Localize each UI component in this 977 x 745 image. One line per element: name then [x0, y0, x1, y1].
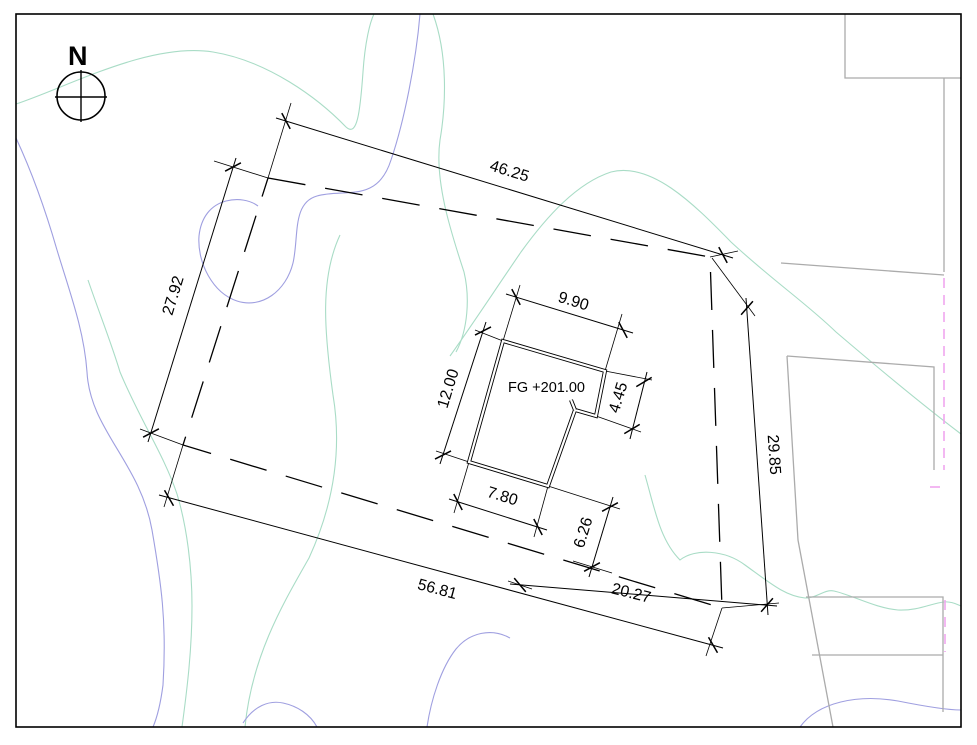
- north-arrow: N: [55, 41, 107, 122]
- extension-line: [548, 486, 620, 509]
- site-plan-canvas: 46.25 27.92 56.81 29.85 9.90 12.00 4.45 …: [0, 0, 977, 745]
- dimension-line-offset-right: [589, 497, 613, 577]
- dimension-text-bldg-bottom: 7.80: [485, 484, 520, 509]
- contour-line: [88, 280, 192, 727]
- extension-line: [706, 608, 722, 656]
- tick-mark: [454, 494, 462, 510]
- tick-mark: [619, 322, 627, 338]
- parcel-outline: [787, 356, 934, 470]
- tick-mark: [225, 163, 241, 171]
- site-plan-drawing: 46.25 27.92 56.81 29.85 9.90 12.00 4.45 …: [0, 0, 977, 745]
- contour-line: [800, 699, 961, 727]
- easement-lines: [930, 278, 947, 652]
- dimension-text-offset-right: 6.26: [571, 515, 596, 550]
- dimension-line-site-top: [276, 118, 733, 258]
- contour-line: [16, 14, 374, 129]
- extension-line: [140, 429, 183, 445]
- tick-mark: [165, 490, 174, 506]
- dimension-text-site-left: 27.92: [160, 274, 188, 317]
- contour-line: [199, 14, 420, 303]
- road-edge: [787, 356, 833, 727]
- tick-mark: [512, 289, 520, 305]
- parcel-outline: [845, 14, 961, 78]
- dimension-text-bldg-right: 4.45: [606, 380, 631, 415]
- dimension-line-site-bottom: [159, 495, 723, 648]
- contour-line: [433, 14, 467, 352]
- extension-line: [164, 445, 183, 507]
- dimension-text-bldg-left: 12.00: [435, 367, 463, 410]
- building-footprint: [469, 341, 605, 486]
- extension-line: [503, 285, 520, 341]
- north-label: N: [68, 41, 88, 71]
- contour-lines-minor: [16, 14, 961, 727]
- contour-line: [16, 138, 164, 727]
- dimension-lines: [148, 118, 777, 648]
- dimension-line-site-left: [148, 158, 236, 442]
- extension-line: [454, 462, 469, 513]
- contour-line: [245, 235, 340, 727]
- extension-line: [268, 103, 291, 178]
- drawing-border: [16, 14, 961, 727]
- contour-line: [243, 702, 317, 727]
- tick-mark: [282, 113, 290, 129]
- dimension-text-site-top: 46.25: [488, 158, 531, 186]
- building-outline-inner: [469, 341, 605, 486]
- dimension-text-site-right: 29.85: [764, 434, 784, 475]
- parcel-outline: [781, 263, 944, 275]
- dimension-text-site-bottom: 56.81: [416, 576, 459, 603]
- contour-line: [645, 475, 961, 610]
- adjacent-parcel-lines: [781, 14, 961, 727]
- extension-line: [475, 330, 503, 341]
- contour-line: [427, 633, 510, 727]
- contour-lines-major: [16, 14, 961, 727]
- finished-grade-label: FG +201.00: [508, 380, 585, 396]
